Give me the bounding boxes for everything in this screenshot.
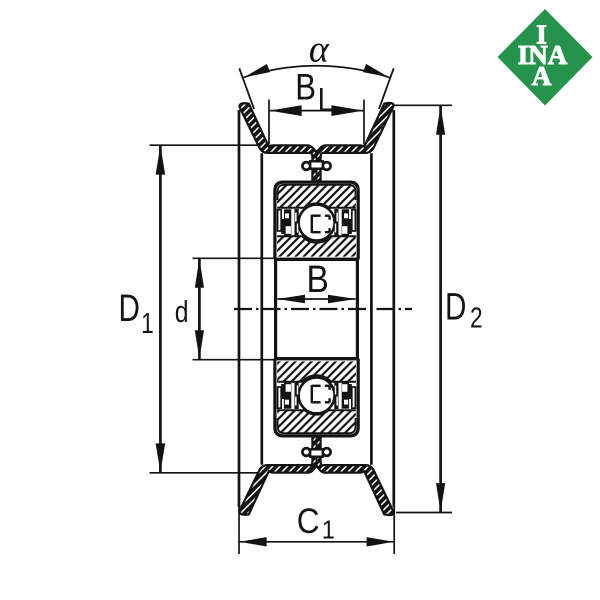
svg-text:D: D [119, 288, 140, 330]
svg-text:B: B [295, 67, 316, 108]
svg-text:1: 1 [322, 516, 335, 544]
svg-text:C: C [297, 503, 320, 542]
svg-text:d: d [175, 294, 189, 328]
svg-text:A: A [532, 61, 552, 91]
svg-text:L: L [318, 82, 333, 119]
svg-text:D: D [445, 286, 466, 328]
svg-text:α: α [309, 29, 330, 71]
svg-text:2: 2 [470, 301, 483, 334]
svg-text:B: B [307, 258, 329, 300]
svg-text:1: 1 [141, 306, 154, 339]
